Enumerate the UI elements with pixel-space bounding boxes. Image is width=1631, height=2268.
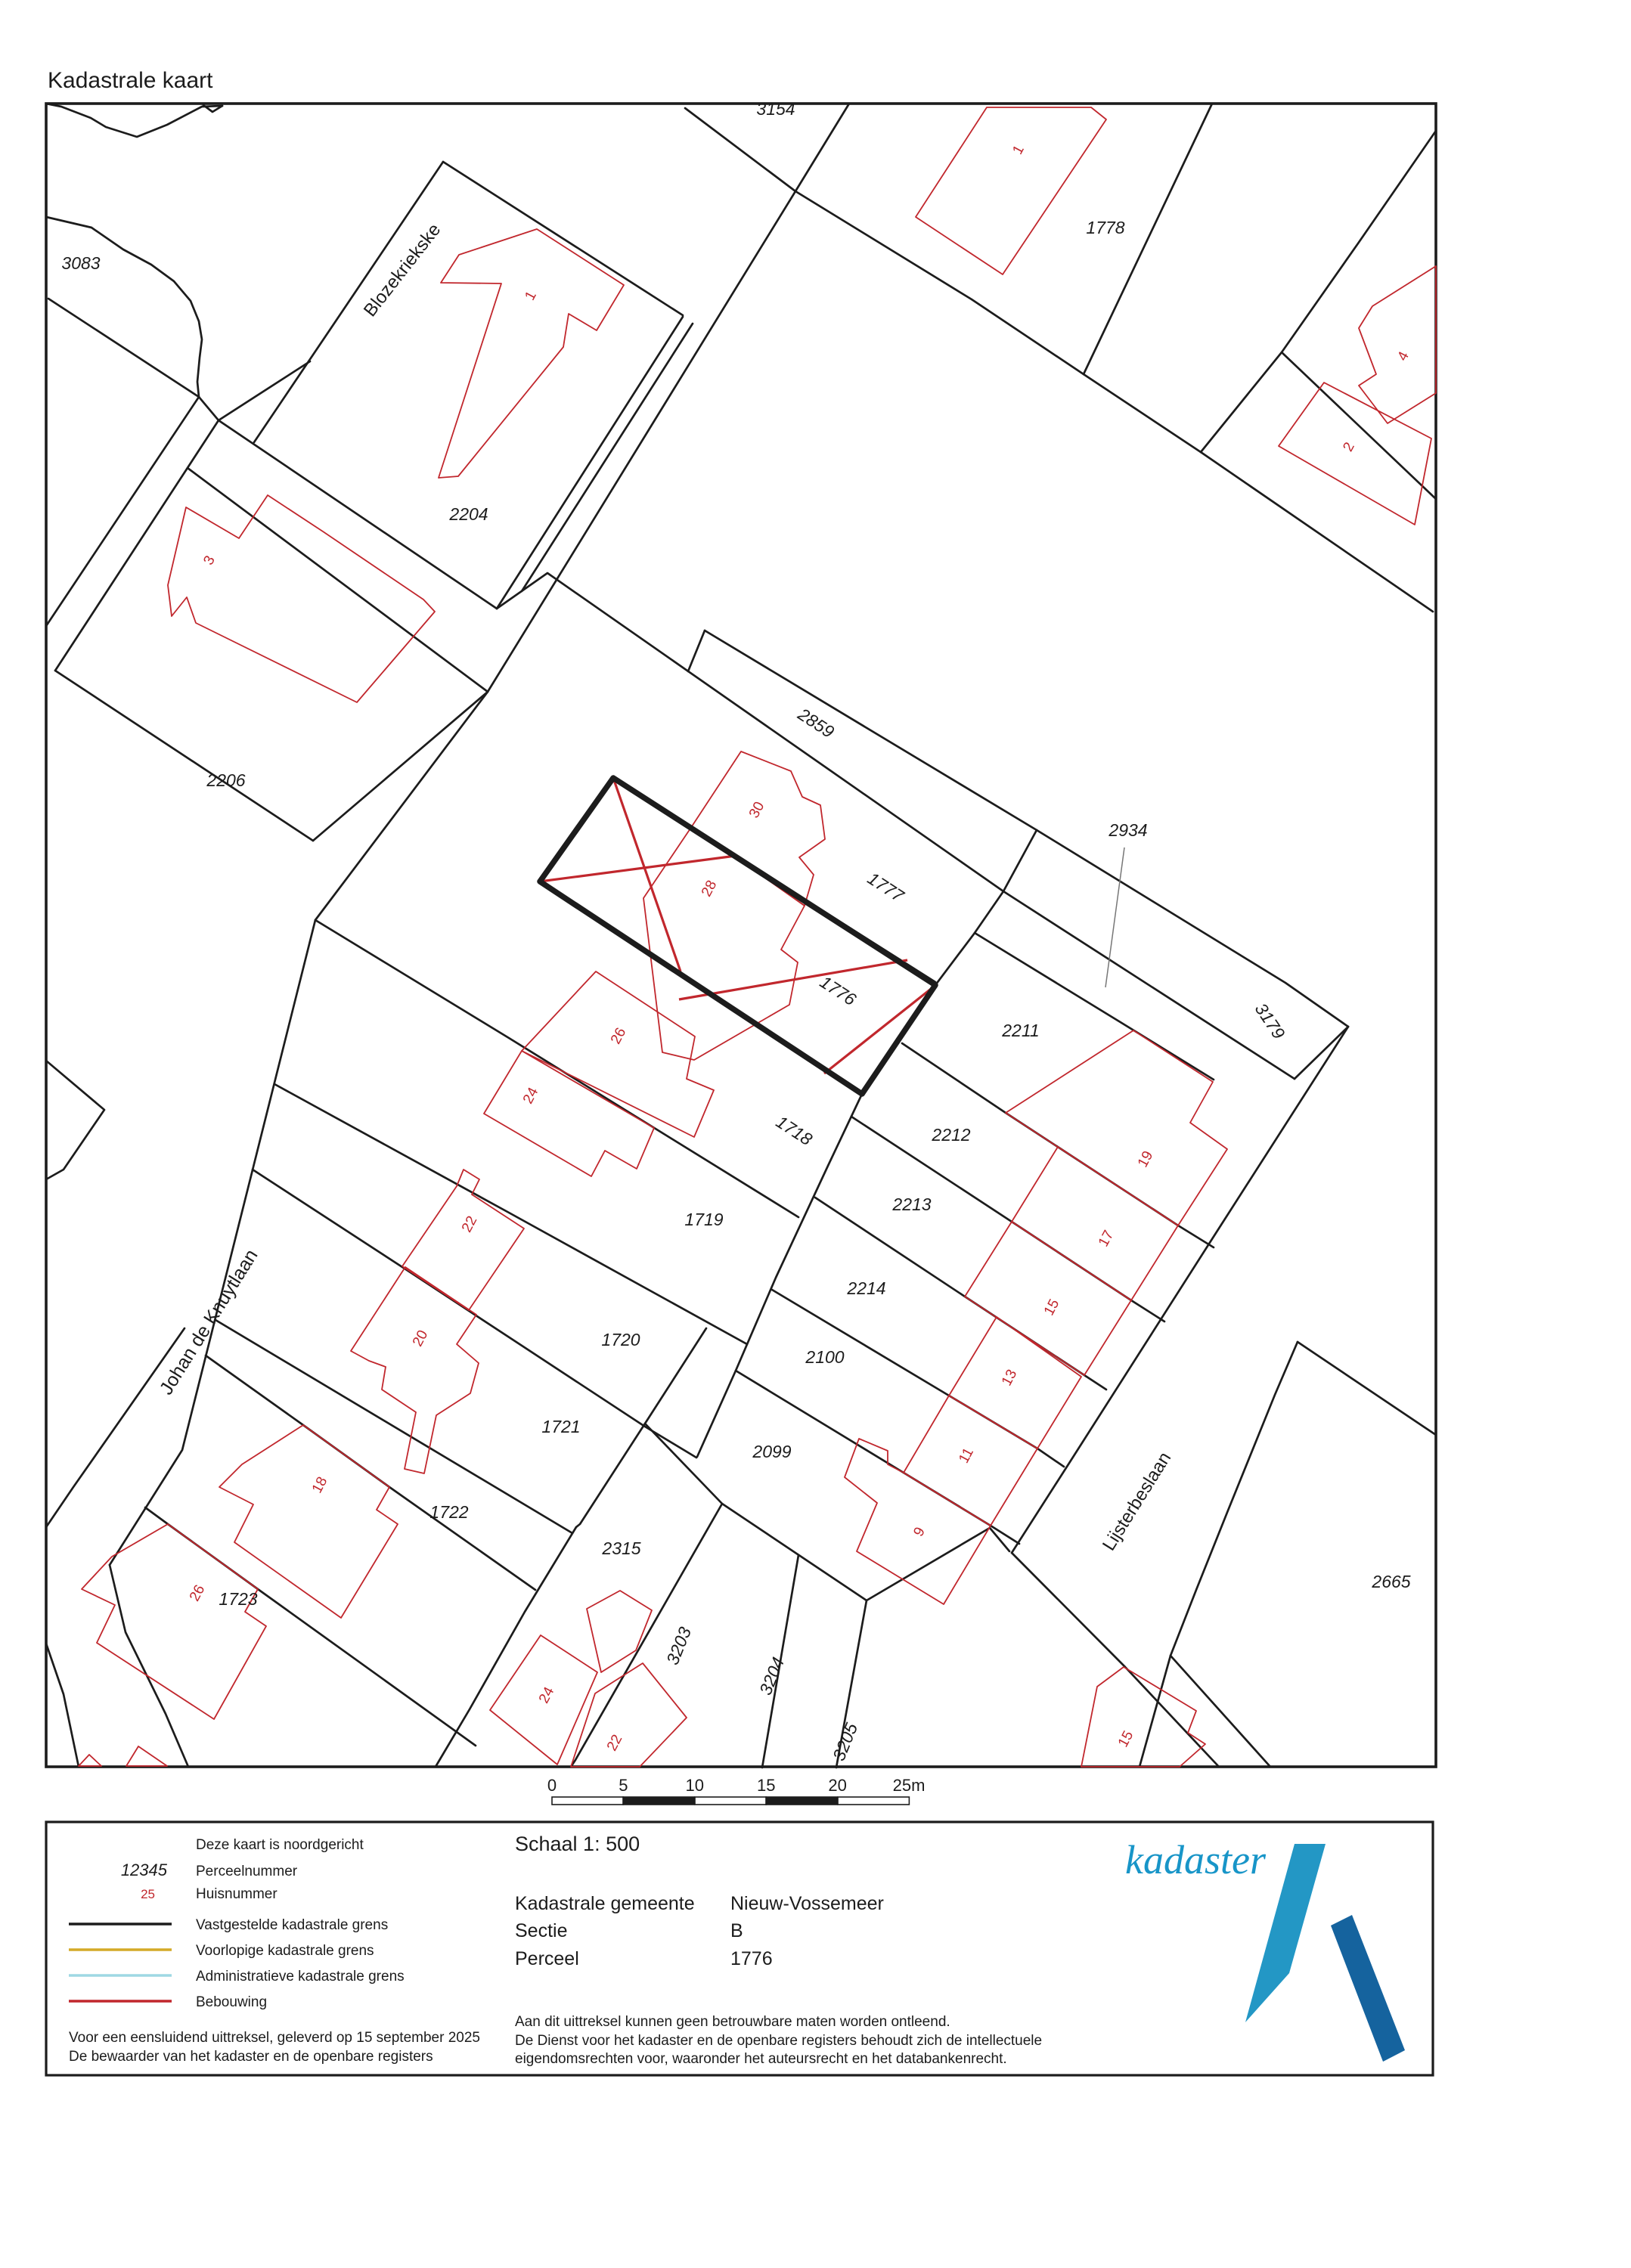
- svg-text:1719: 1719: [684, 1210, 723, 1229]
- svg-text:2212: 2212: [931, 1125, 970, 1145]
- svg-text:1776: 1776: [730, 1948, 773, 1969]
- svg-text:1722: 1722: [429, 1502, 468, 1522]
- svg-text:2315: 2315: [601, 1538, 640, 1558]
- svg-text:5: 5: [619, 1776, 628, 1795]
- svg-text:Kadastrale kaart: Kadastrale kaart: [48, 68, 213, 93]
- svg-text:0: 0: [547, 1776, 557, 1795]
- svg-text:Nieuw-Vossemeer: Nieuw-Vossemeer: [730, 1893, 884, 1914]
- svg-text:1723: 1723: [219, 1589, 257, 1609]
- svg-text:2204: 2204: [448, 504, 488, 524]
- svg-text:B: B: [730, 1920, 743, 1941]
- svg-text:Huisnummer: Huisnummer: [196, 1886, 278, 1902]
- svg-text:3083: 3083: [61, 253, 100, 273]
- svg-text:Voor een eensluidend uittrekse: Voor een eensluidend uittreksel, gelever…: [69, 2030, 480, 2046]
- svg-text:12345: 12345: [121, 1861, 168, 1879]
- svg-text:20: 20: [828, 1776, 846, 1795]
- svg-text:15: 15: [757, 1776, 775, 1795]
- svg-text:3154: 3154: [756, 99, 795, 119]
- svg-text:1721: 1721: [541, 1417, 580, 1436]
- svg-text:2100: 2100: [805, 1347, 844, 1367]
- svg-text:2206: 2206: [206, 770, 245, 790]
- svg-text:Kadastrale gemeente: Kadastrale gemeente: [515, 1893, 695, 1914]
- svg-text:Vastgestelde kadastrale grens: Vastgestelde kadastrale grens: [196, 1917, 388, 1933]
- svg-text:1778: 1778: [1086, 218, 1124, 237]
- svg-text:Aan dit uittreksel kunnen geen: Aan dit uittreksel kunnen geen betrouwba…: [515, 2014, 950, 2030]
- svg-text:2214: 2214: [846, 1278, 885, 1298]
- svg-text:Deze kaart is noordgericht: Deze kaart is noordgericht: [196, 1837, 364, 1853]
- svg-text:25m: 25m: [893, 1776, 926, 1795]
- svg-text:2213: 2213: [891, 1194, 931, 1214]
- svg-text:2934: 2934: [1108, 820, 1147, 840]
- svg-text:Voorlopige kadastrale grens: Voorlopige kadastrale grens: [196, 1943, 374, 1959]
- svg-text:25: 25: [141, 1887, 155, 1901]
- svg-text:10: 10: [686, 1776, 704, 1795]
- svg-text:eigendomsrechten voor, waarond: eigendomsrechten voor, waaronder het aut…: [515, 2051, 1007, 2067]
- svg-text:Schaal 1: 500: Schaal 1: 500: [515, 1833, 640, 1855]
- svg-text:2211: 2211: [1001, 1021, 1039, 1040]
- svg-text:De Dienst voor het kadaster en: De Dienst voor het kadaster en de openba…: [515, 2033, 1042, 2049]
- svg-text:kadaster: kadaster: [1125, 1837, 1267, 1882]
- svg-text:Perceelnummer: Perceelnummer: [196, 1864, 298, 1879]
- svg-text:De bewaarder van het kadaster: De bewaarder van het kadaster en de open…: [69, 2049, 433, 2065]
- svg-text:Bebouwing: Bebouwing: [196, 1994, 267, 2010]
- svg-text:1720: 1720: [601, 1330, 640, 1349]
- svg-text:Sectie: Sectie: [515, 1920, 567, 1941]
- svg-text:2665: 2665: [1371, 1572, 1410, 1591]
- svg-text:Perceel: Perceel: [515, 1948, 579, 1969]
- svg-text:2099: 2099: [752, 1442, 791, 1461]
- svg-text:Administratieve kadastrale gre: Administratieve kadastrale grens: [196, 1969, 405, 1984]
